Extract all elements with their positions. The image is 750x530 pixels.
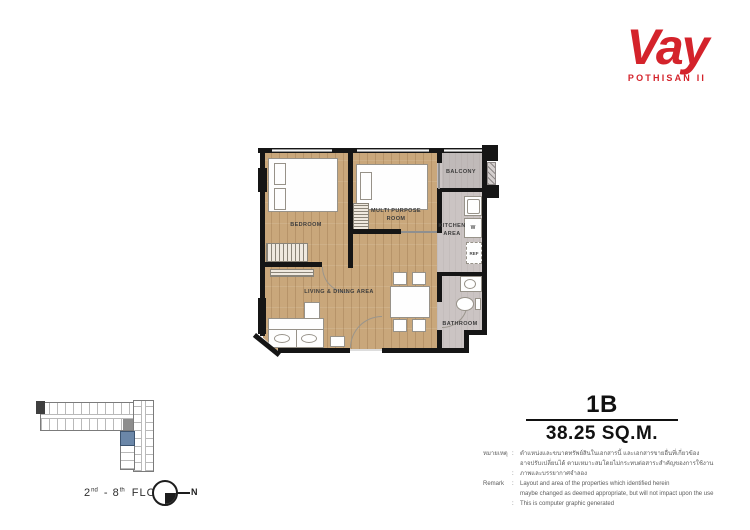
remarks-colon: :	[512, 469, 518, 479]
floor-from-suffix: nd	[91, 487, 98, 493]
unit-area: 38.25 SQ.M.	[526, 423, 678, 445]
column-left-lower	[258, 298, 266, 334]
toilet-bowl	[456, 297, 474, 311]
brand-name: Vay	[612, 22, 722, 72]
remarks-spacer	[483, 459, 510, 469]
wall-bedroom-mpr	[348, 151, 353, 268]
wall-kitchen-bathroom	[442, 272, 484, 276]
toilet-tank	[475, 298, 481, 310]
north-label: N	[191, 487, 198, 497]
wall-right	[482, 148, 487, 333]
tv-console	[270, 269, 314, 277]
mpr-sliding-door	[401, 231, 437, 233]
bedroom-window	[272, 149, 332, 152]
side-table	[304, 302, 320, 319]
unit-divider-line	[526, 419, 678, 421]
bedroom-label: BEDROOM	[290, 222, 322, 228]
dining-chair-3	[393, 319, 407, 332]
kitchen-label-line2: AREA	[443, 231, 460, 237]
wall-bedroom-south	[263, 262, 322, 267]
mpr-shelf	[353, 203, 369, 231]
remarks-en-label: Remark	[483, 479, 510, 489]
wall-bathroom-west-upper	[437, 272, 442, 302]
dining-chair-2	[412, 272, 426, 285]
kitchen-label-line1: KITCHEN	[438, 223, 465, 229]
bedroom-wardrobe	[266, 243, 308, 262]
floor-plan: W REF BEDROOM MULTI PURPOSE ROOM LIVING …	[258, 145, 490, 357]
unit-info: 1B 38.25 SQ.M.	[526, 392, 678, 445]
north-arrow-icon	[152, 480, 178, 506]
floor-to-suffix: th	[120, 487, 125, 493]
wall-mpr-south	[353, 229, 401, 234]
unit-type: 1B	[526, 392, 678, 418]
wall-bottom-left-seg	[278, 348, 350, 353]
bedroom-pillow-2	[274, 188, 286, 210]
north-arrow-wedge	[165, 493, 176, 504]
column-top-right	[482, 145, 498, 161]
remarks-spacer	[483, 499, 510, 509]
remarks-colon: :	[512, 499, 518, 509]
brochure-page: Vay POTHISAN II	[0, 0, 750, 530]
keyplan-core-block	[36, 401, 45, 414]
sofa-divider	[296, 329, 297, 347]
remarks-th-label: หมายเหตุ	[483, 449, 510, 459]
remarks-en-line2: maybe changed as deemed appropriate, but…	[520, 489, 733, 499]
sofa-cushion-2	[301, 334, 317, 343]
remarks-th-line1: ตำแหน่งและขนาดทรัพย์สินในเอกสารนี้ และเอ…	[520, 449, 733, 459]
sofa-cushion-1	[274, 334, 290, 343]
keyplan-corner-block	[123, 419, 133, 430]
remarks-th-line3: ภาพและบรรยากาศจำลอง	[520, 469, 733, 479]
remarks-block: หมายเหตุ : ตำแหน่งและขนาดทรัพย์สินในเอกส…	[483, 449, 733, 509]
dining-chair-1	[393, 272, 407, 285]
remarks-spacer	[483, 489, 510, 499]
remarks-colon: :	[512, 449, 518, 459]
entrance-threshold	[350, 349, 382, 351]
remarks-th-line2: อาจปรับเปลี่ยนได้ ตามเหมาะสมโดยไม่กระทบต…	[520, 459, 733, 469]
wall-bottom-right-seg	[382, 348, 469, 353]
floor-mid: - 8	[104, 487, 120, 499]
balcony-label: BALCONY	[446, 169, 476, 175]
keyplan-corridor-horizontal	[41, 414, 134, 419]
keyplan-highlighted-unit	[120, 431, 135, 446]
fridge-label: REF	[466, 242, 482, 264]
bedroom-pillow-1	[274, 163, 286, 185]
balcony-sliding-door	[438, 163, 440, 189]
balcony-rail	[444, 149, 482, 152]
dining-table	[390, 286, 430, 318]
remarks-colon: :	[512, 479, 518, 489]
notch-mask	[469, 335, 494, 357]
wall-bathroom-west-lower	[437, 330, 442, 348]
wall-divider-top	[437, 151, 442, 163]
keyplan-corridor-vertical	[141, 401, 146, 471]
shoe-cabinet	[330, 336, 345, 347]
mpr-label-line2: ROOM	[387, 216, 406, 222]
mpr-label-line1: MULTI PURPOSE	[371, 208, 421, 214]
column-left-upper	[258, 168, 267, 192]
washer-label: W	[464, 218, 482, 238]
remarks-spacer	[483, 469, 510, 479]
remarks-en-line1: Layout and area of the properties which …	[520, 479, 733, 489]
brand-logo: Vay POTHISAN II	[612, 22, 722, 83]
ac-unit	[487, 162, 496, 185]
wall-balcony-kitchen	[442, 188, 484, 192]
living-label: LIVING & DINING AREA	[304, 289, 374, 295]
mpr-window	[357, 149, 429, 152]
wall-notch-v	[464, 330, 469, 353]
remarks-en-line3: This is computer graphic generated	[520, 499, 733, 509]
kitchen-sink-basin	[467, 199, 480, 214]
bathroom-label: BATHROOM	[442, 321, 477, 327]
column-balcony-right	[484, 185, 499, 198]
bath-sink-basin	[464, 279, 476, 289]
brand-subtitle: POTHISAN II	[612, 73, 722, 83]
dining-chair-4	[412, 319, 426, 332]
mpr-pillow	[360, 172, 372, 200]
remarks-spacer	[512, 489, 518, 499]
remarks-spacer	[512, 459, 518, 469]
